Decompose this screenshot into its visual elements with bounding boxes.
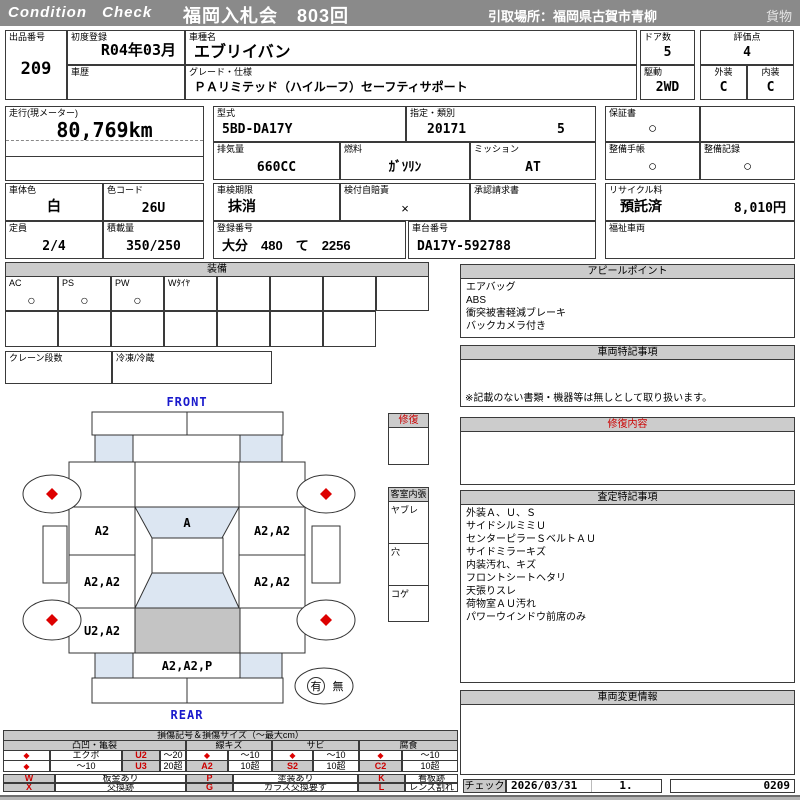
appeal-item: ABS xyxy=(466,294,789,307)
assessment-item: 荷物室ＡＵ汚れ xyxy=(466,598,789,611)
legend-desc-k: 看板跡 xyxy=(405,774,458,783)
model-code-cell: 型式 5BD-DA17Y xyxy=(213,106,406,142)
equipment-wtire-label: Wﾀｲﾔ xyxy=(168,278,190,288)
car-damage-diagram: FRONT xyxy=(0,393,440,728)
legend-desc-g: ガラス交換要す xyxy=(233,783,358,792)
crane-stages-cell: クレーン段数 xyxy=(5,351,112,384)
rear-window-area xyxy=(135,573,239,608)
equipment-cell-empty xyxy=(217,276,270,311)
legend-size-c2: 10超 xyxy=(402,760,458,772)
equipment-cell-empty xyxy=(5,311,58,347)
maintenance-book-label: 整備手帳 xyxy=(609,144,645,154)
legend-code-c2: C2 xyxy=(359,760,402,772)
legend-desc-x: 交換跡 xyxy=(55,783,186,792)
check-code: 0209 xyxy=(764,780,791,792)
vehicle-category: 貨物 xyxy=(766,6,792,25)
vehicle-history-cell: 車歴 xyxy=(67,65,185,100)
assessment-item: センターピラーＳベルトＡＵ xyxy=(466,533,789,546)
fuel-cell: 燃料 ｶﾞｿﾘﾝ xyxy=(340,142,470,180)
mark-rear-gate: A2,A2,P xyxy=(162,659,213,673)
right-sill xyxy=(312,526,340,583)
equipment-ac-label: AC xyxy=(9,278,22,288)
check-label: チェック xyxy=(463,779,506,793)
recycle-fee-cell: リサイクル料 預託済 8,010円 xyxy=(605,183,795,221)
inspection-cell: 車検期限 抹消 xyxy=(213,183,340,221)
vehicle-notes-note: ※記載のない書類・機器等は無しとして取り扱います。 xyxy=(465,389,712,404)
doors-cell: ドア数 5 xyxy=(640,30,695,65)
equipment-cell-pw: PW ○ xyxy=(111,276,164,311)
mileage-cell: 走行(現メーター) 80,769km xyxy=(5,106,204,181)
equipment-cell-wtire: Wﾀｲﾔ xyxy=(164,276,217,311)
doors-value: 5 xyxy=(641,45,694,60)
registration-number-label: 登録番号 xyxy=(217,223,253,233)
fridge-freezer-label: 冷凍/冷蔵 xyxy=(116,353,155,363)
color-code-cell: 色コード 26U xyxy=(103,183,204,221)
displacement-value: 660CC xyxy=(214,160,339,175)
transmission-label: ミッション xyxy=(474,144,519,154)
vehicle-history-label: 車歴 xyxy=(71,67,89,77)
approval-request-label: 承認請求書 xyxy=(474,185,519,195)
exterior-grade-cell: 外装 C xyxy=(700,65,747,100)
equipment-pw-mark: ○ xyxy=(112,292,163,308)
legend-code-u3: U3 xyxy=(122,760,160,772)
registration-number-cell: 登録番号 大分 480 て 2256 xyxy=(213,221,406,259)
assessment-item: 外装Ａ、Ｕ、Ｓ xyxy=(466,507,789,520)
score-label: 評価点 xyxy=(701,32,793,42)
repair-mini-header: 修復 xyxy=(389,414,428,428)
fuel-value: ｶﾞｿﾘﾝ xyxy=(341,156,469,175)
roof-rear-area xyxy=(135,608,240,653)
body-color-value: 白 xyxy=(6,196,102,216)
equipment-cell-empty xyxy=(217,311,270,347)
equipment-cell-empty xyxy=(323,311,376,347)
equipment-cell-empty xyxy=(111,311,164,347)
legend-diamond-icon: ◆ xyxy=(3,760,50,772)
grade-value: ＰＡリミテッド（ハイルーフ）セーフティサポート xyxy=(186,78,636,95)
load-capacity-cell: 積載量 350/250 xyxy=(103,221,204,259)
exterior-grade-value: C xyxy=(701,80,746,95)
assessment-notes-header: 査定特記事項 xyxy=(461,491,794,505)
lot-number-label: 出品番号 xyxy=(9,32,45,42)
pickup-location: 引取場所：福岡県古賀市青柳 xyxy=(488,6,657,25)
lot-number-value: 209 xyxy=(6,59,66,79)
chassis-number-value: DA17Y-592788 xyxy=(409,239,595,254)
legend-code-x: X xyxy=(3,783,55,792)
grade-cell: グレード・仕様 ＰＡリミテッド（ハイルーフ）セーフティサポート xyxy=(185,65,637,100)
check-date-box: 2026/03/31 1. xyxy=(506,779,662,793)
chassis-number-label: 車台番号 xyxy=(412,223,448,233)
change-info-panel: 車両変更情報 xyxy=(460,690,795,775)
repair-mini-panel: 修復 xyxy=(388,413,429,465)
mark-windshield: A xyxy=(183,516,191,530)
auction-sheet: Condition Check 福岡入札会 803回 引取場所：福岡県古賀市青柳… xyxy=(0,0,800,800)
insurance-label: 検付自賠責 xyxy=(344,185,389,195)
load-capacity-value: 350/250 xyxy=(104,239,203,254)
legend-size-dent: ～10 xyxy=(50,760,122,772)
legend-desc-p: 塗装あり xyxy=(233,774,358,783)
lot-number-cell: 出品番号 209 xyxy=(5,30,67,100)
mileage-divider-solid xyxy=(6,156,203,157)
recycle-fee-label: リサイクル料 xyxy=(609,185,663,195)
legend-code-p: P xyxy=(186,774,233,783)
legend-code-w: W xyxy=(3,774,55,783)
legend-code-a2: A2 xyxy=(186,760,228,772)
cabin-row-tear: ヤブレ xyxy=(389,502,428,544)
assessment-item: サイドミラーキズ xyxy=(466,546,789,559)
registration-number-value: 大分 480 て 2256 xyxy=(214,235,405,254)
model-code-label: 型式 xyxy=(217,108,235,118)
inspection-value: 抹消 xyxy=(214,196,339,216)
legend-size-a2: 10超 xyxy=(228,760,272,772)
welfare-vehicle-cell: 福祉車両 xyxy=(605,221,795,259)
transmission-value: AT xyxy=(471,160,595,175)
front-label: FRONT xyxy=(166,395,207,409)
equipment-cell-empty xyxy=(164,311,217,347)
color-code-label: 色コード xyxy=(107,185,143,195)
fridge-freezer-cell: 冷凍/冷蔵 xyxy=(112,351,272,384)
mark-left-rear-door: A2,A2 xyxy=(84,575,120,589)
interior-grade-label: 内装 xyxy=(748,67,793,77)
left-sill xyxy=(43,526,67,583)
mileage-label: 走行(現メーター) xyxy=(9,108,78,118)
equipment-cell-empty xyxy=(270,276,323,311)
legend-desc-l: レンズ割れ xyxy=(405,783,458,792)
cabin-row-burn: コゲ xyxy=(389,586,428,627)
check-code-box: 0209 xyxy=(670,779,795,793)
cabin-row-hole: 穴 xyxy=(389,544,428,586)
fuel-label: 燃料 xyxy=(344,144,362,154)
equipment-cell-empty xyxy=(58,311,111,347)
first-registration-value: R04年03月 xyxy=(68,39,184,60)
maintenance-book-mark: ○ xyxy=(606,158,699,175)
class-sub-value: 5 xyxy=(557,122,565,137)
maintenance-record-mark: ○ xyxy=(701,158,794,175)
mark-right-rear-door: A2,A2 xyxy=(254,575,290,589)
score-cell: 評価点 4 xyxy=(700,30,794,65)
legend-desc-w: 板金あり xyxy=(55,774,186,783)
capacity-label: 定員 xyxy=(9,223,27,233)
blank-cell xyxy=(700,106,795,142)
exterior-grade-label: 外装 xyxy=(701,67,746,77)
warranty-mark: ○ xyxy=(606,120,699,137)
drive-cell: 駆動 2WD xyxy=(640,65,695,100)
appeal-points-panel: アピールポイント エアバッグ ABS 衝突被害軽減ブレーキ バックカメラ付き xyxy=(460,264,795,338)
legend-code-g: G xyxy=(186,783,233,792)
appeal-item: エアバッグ xyxy=(466,281,789,294)
maintenance-record-label: 整備記録 xyxy=(704,144,740,154)
none-label: 無 xyxy=(333,679,344,693)
mark-right-front-door: A2,A2 xyxy=(254,524,290,538)
color-code-value: 26U xyxy=(104,201,203,216)
class-label: 指定・類別 xyxy=(410,108,455,118)
assessment-item: 天張りスレ xyxy=(466,585,789,598)
inspection-label: 車検期限 xyxy=(217,185,253,195)
legend-size-s2: 10超 xyxy=(313,760,359,772)
score-value: 4 xyxy=(701,45,793,60)
chassis-number-cell: 車台番号 DA17Y-592788 xyxy=(408,221,596,259)
equipment-cell-empty xyxy=(270,311,323,347)
welfare-vehicle-label: 福祉車両 xyxy=(609,223,645,233)
insurance-mark: × xyxy=(341,201,469,216)
equipment-cell-empty xyxy=(376,276,429,311)
vehicle-notes-panel: 車両特記事項 ※記載のない書類・機器等は無しとして取り扱います。 xyxy=(460,345,795,407)
approval-request-cell: 承認請求書 xyxy=(470,183,596,221)
recycle-fee-value: 8,010円 xyxy=(606,197,794,216)
appeal-item: 衝突被害軽減ブレーキ xyxy=(466,307,789,320)
repair-content-header: 修復内容 xyxy=(461,418,794,432)
check-date: 2026/03/31 xyxy=(511,780,577,792)
vehicle-notes-header: 車両特記事項 xyxy=(461,346,794,360)
model-code-value: 5BD-DA17Y xyxy=(214,122,405,137)
assessment-item: フロントシートヘタリ xyxy=(466,572,789,585)
check-seq: 1. xyxy=(591,780,661,792)
brand-title: Condition Check xyxy=(8,4,152,21)
crane-stages-label: クレーン段数 xyxy=(9,353,63,363)
legend-code-s2: S2 xyxy=(272,760,313,772)
model-name-cell: 車種名 エブリイバン xyxy=(185,30,637,65)
grade-label: グレード・仕様 xyxy=(189,67,252,77)
interior-grade-cell: 内装 C xyxy=(747,65,794,100)
drive-label: 駆動 xyxy=(644,67,662,77)
legend-code-k: K xyxy=(358,774,405,783)
first-registration-cell: 初度登録 R04年03月 xyxy=(67,30,185,65)
appeal-points-header: アピールポイント xyxy=(461,265,794,279)
auction-title: 福岡入札会 803回 xyxy=(183,2,349,28)
repair-content-panel: 修復内容 xyxy=(460,417,795,485)
cabin-lining-panel: 客室内張 ヤブレ 穴 コゲ xyxy=(388,487,429,622)
equipment-ps-label: PS xyxy=(62,278,74,288)
equipment-ps-mark: ○ xyxy=(59,292,110,308)
equipment-cell-ps: PS ○ xyxy=(58,276,111,311)
title-bar: Condition Check 福岡入札会 803回 引取場所：福岡県古賀市青柳… xyxy=(0,0,800,26)
model-name-value: エブリイバン xyxy=(186,38,636,62)
warranty-label: 保証書 xyxy=(609,108,636,118)
assessment-item: 内装汚れ、キズ xyxy=(466,559,789,572)
body-color-cell: 車体色 白 xyxy=(5,183,103,221)
doors-label: ドア数 xyxy=(644,32,671,42)
class-no-value: 20171 xyxy=(407,122,595,137)
maintenance-record-cell: 整備記録 ○ xyxy=(700,142,795,180)
assessment-item: サイドシルミミＵ xyxy=(466,520,789,533)
bottom-bar xyxy=(0,795,800,800)
body-color-label: 車体色 xyxy=(9,185,36,195)
equipment-cell-empty xyxy=(323,276,376,311)
mileage-value: 80,769km xyxy=(6,118,203,142)
equipment-ac-mark: ○ xyxy=(6,292,57,308)
transmission-cell: ミッション AT xyxy=(470,142,596,180)
change-info-header: 車両変更情報 xyxy=(461,691,794,705)
legend-size-u3: 20超 xyxy=(160,760,186,772)
assessment-notes-panel: 査定特記事項 外装Ａ、Ｕ、Ｓ サイドシルミミＵ センターピラーＳベルトＡＵ サイ… xyxy=(460,490,795,683)
capacity-cell: 定員 2/4 xyxy=(5,221,103,259)
equipment-header: 装備 xyxy=(5,262,429,277)
appeal-item: バックカメラ付き xyxy=(466,320,789,333)
equipment-pw-label: PW xyxy=(115,278,130,288)
mileage-divider-dashed xyxy=(6,140,203,141)
maintenance-book-cell: 整備手帳 ○ xyxy=(605,142,700,180)
warranty-cell: 保証書 ○ xyxy=(605,106,700,142)
interior-grade-value: C xyxy=(748,80,793,95)
mark-left-quarter: U2,A2 xyxy=(84,624,120,638)
assessment-item: パワーウインドウ前席のみ xyxy=(466,611,789,624)
legend-code-l: L xyxy=(358,783,405,792)
insurance-cell: 検付自賠責 × xyxy=(340,183,470,221)
has-label: 有 xyxy=(311,679,322,693)
displacement-label: 排気量 xyxy=(217,144,244,154)
capacity-value: 2/4 xyxy=(6,239,102,254)
class-cell: 指定・類別 20171 5 xyxy=(406,106,596,142)
equipment-cell-ac: AC ○ xyxy=(5,276,58,311)
cabin-lining-header: 客室内張 xyxy=(389,488,428,502)
mark-left-front-door: A2 xyxy=(95,524,109,538)
load-capacity-label: 積載量 xyxy=(107,223,134,233)
rear-label: REAR xyxy=(171,708,204,722)
drive-value: 2WD xyxy=(641,80,694,95)
displacement-cell: 排気量 660CC xyxy=(213,142,340,180)
